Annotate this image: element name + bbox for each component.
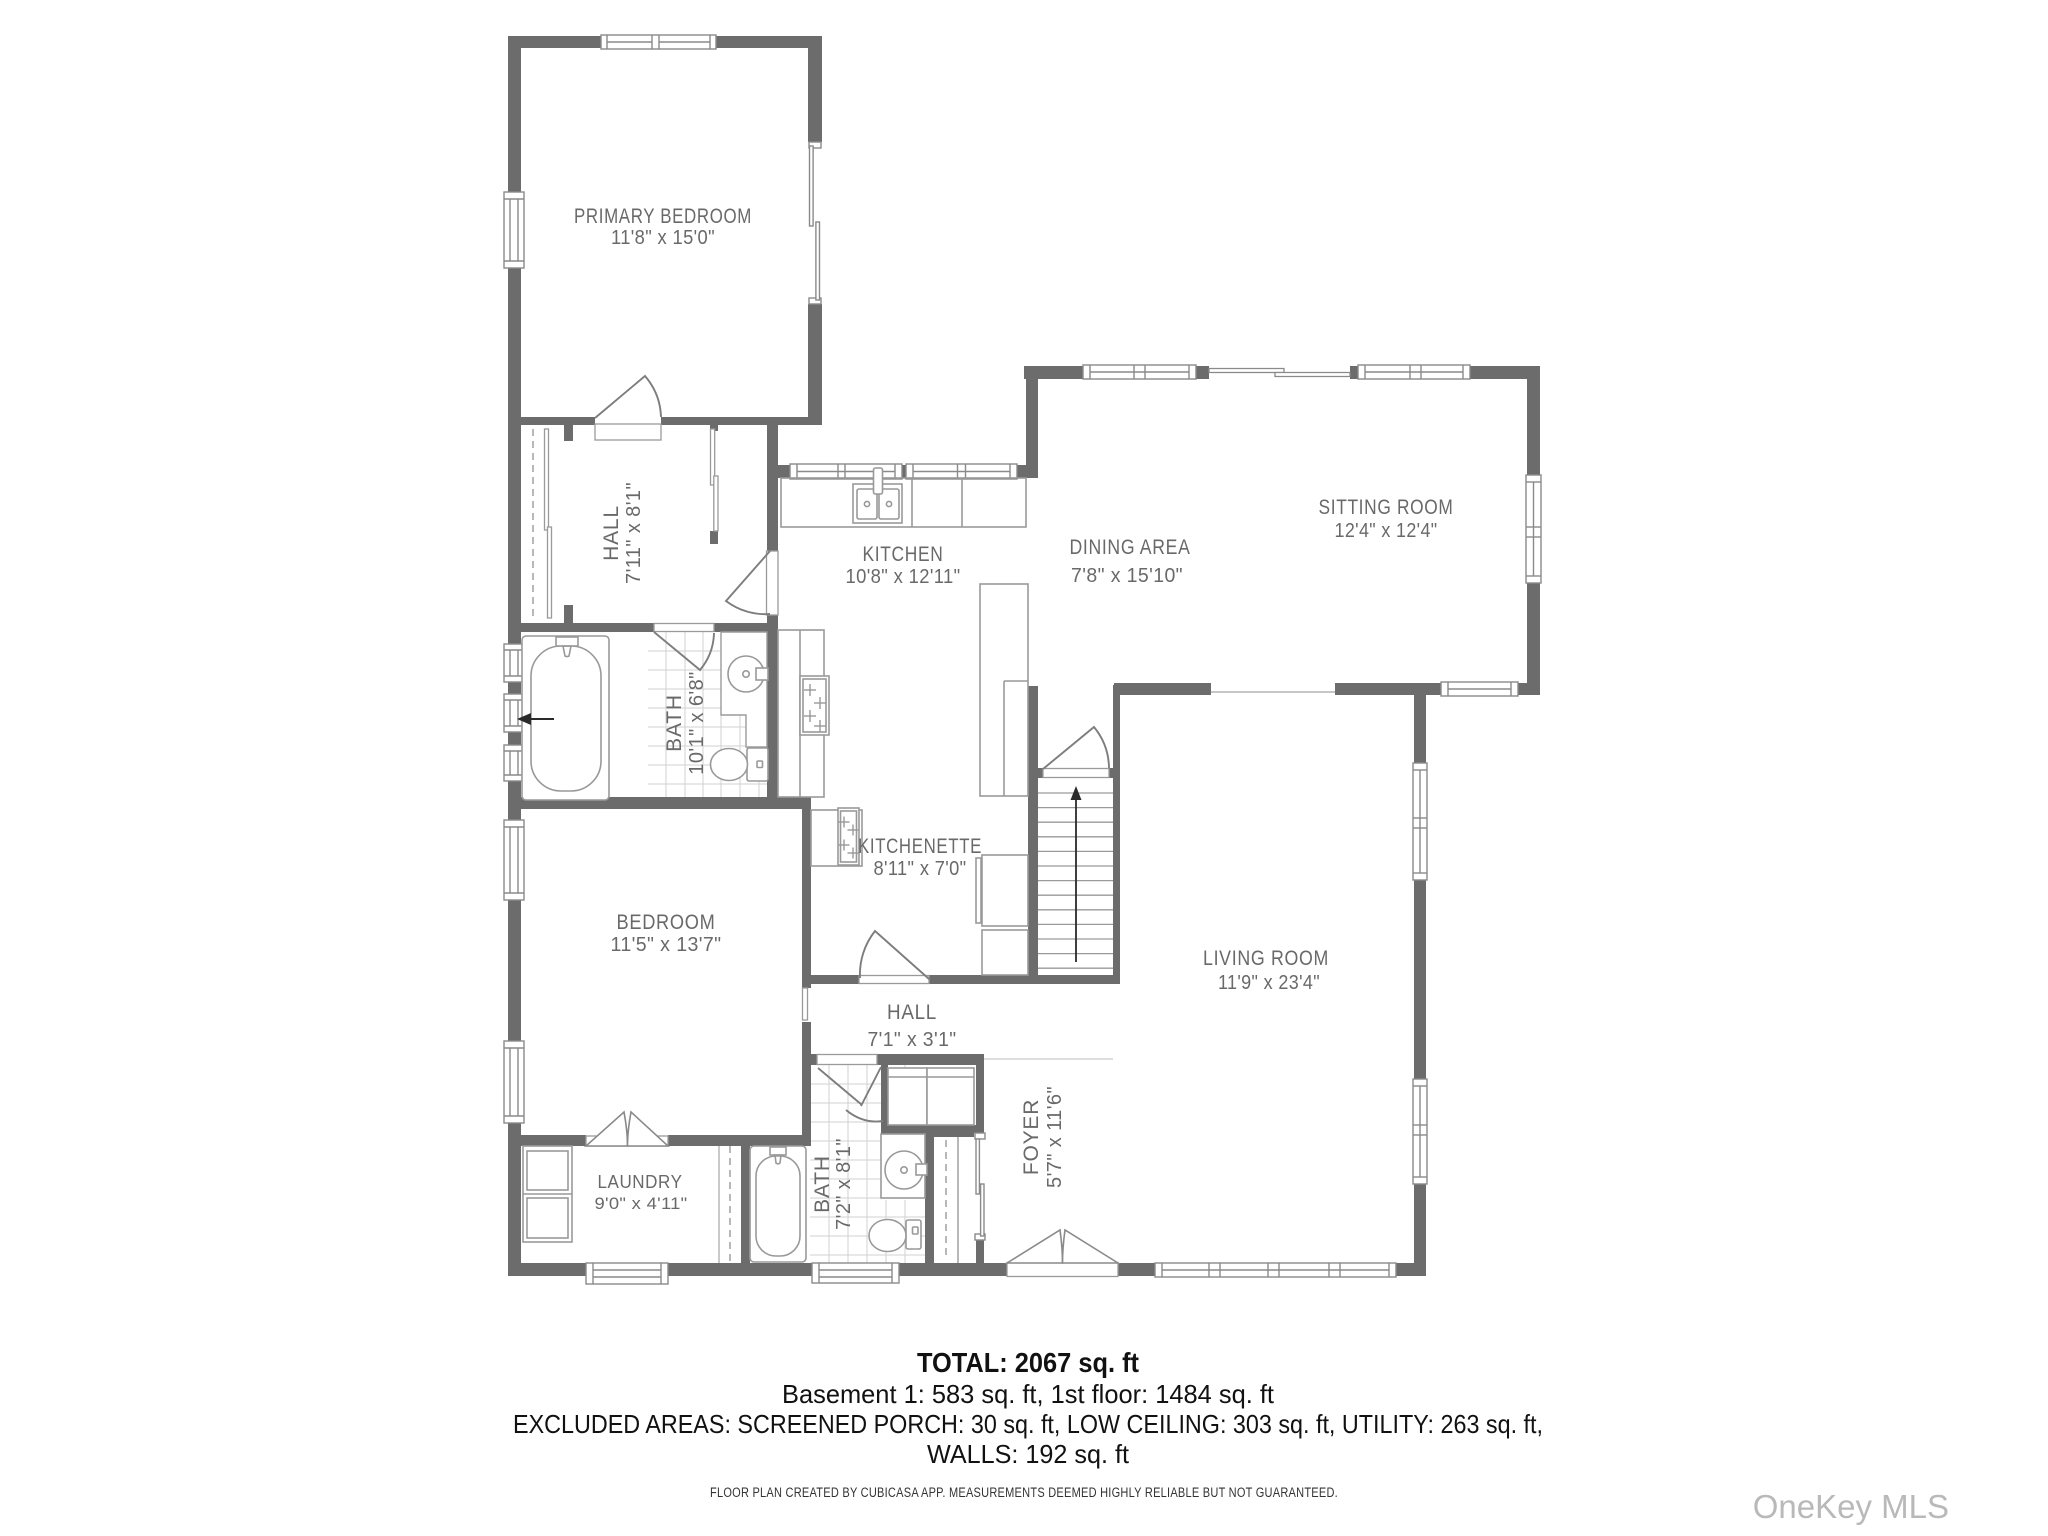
svg-text:SITTING ROOM: SITTING ROOM xyxy=(1319,496,1454,519)
svg-text:8'11" x 7'0": 8'11" x 7'0" xyxy=(874,858,967,880)
svg-text:10'1" x 6'8": 10'1" x 6'8" xyxy=(686,671,708,774)
svg-text:7'2" x 8'1": 7'2" x 8'1" xyxy=(833,1138,855,1230)
svg-text:Basement 1: 583 sq. ft, 1st fl: Basement 1: 583 sq. ft, 1st floor: 1484 … xyxy=(782,1379,1275,1409)
svg-text:OneKey MLS: OneKey MLS xyxy=(1753,1488,1949,1525)
svg-text:5'7" x 11'6": 5'7" x 11'6" xyxy=(1044,1086,1066,1188)
svg-text:BATH: BATH xyxy=(663,694,686,752)
svg-text:BATH: BATH xyxy=(811,1155,834,1213)
svg-text:EXCLUDED AREAS: SCREENED PORCH: EXCLUDED AREAS: SCREENED PORCH: 30 sq. f… xyxy=(513,1409,1543,1439)
svg-text:TOTAL: 2067 sq. ft: TOTAL: 2067 sq. ft xyxy=(917,1347,1139,1378)
svg-text:11'9" x 23'4": 11'9" x 23'4" xyxy=(1218,972,1320,994)
svg-text:KITCHEN: KITCHEN xyxy=(863,543,944,566)
svg-text:9'0" x 4'11": 9'0" x 4'11" xyxy=(595,1194,688,1213)
svg-text:10'8" x 12'11": 10'8" x 12'11" xyxy=(846,566,961,588)
svg-text:FOYER: FOYER xyxy=(1020,1099,1043,1175)
svg-text:FLOOR PLAN CREATED BY CUBICASA: FLOOR PLAN CREATED BY CUBICASA APP. MEAS… xyxy=(710,1485,1338,1500)
svg-text:7'11" x 8'1": 7'11" x 8'1" xyxy=(623,482,645,584)
svg-text:HALL: HALL xyxy=(887,1001,937,1024)
svg-text:DINING AREA: DINING AREA xyxy=(1070,536,1191,559)
svg-text:LIVING ROOM: LIVING ROOM xyxy=(1203,947,1329,970)
svg-text:7'1" x 3'1": 7'1" x 3'1" xyxy=(868,1029,957,1051)
svg-text:12'4" x 12'4": 12'4" x 12'4" xyxy=(1335,520,1438,542)
svg-text:11'8" x 15'0": 11'8" x 15'0" xyxy=(611,227,715,249)
svg-text:HALL: HALL xyxy=(600,505,623,561)
svg-text:LAUNDRY: LAUNDRY xyxy=(598,1172,683,1192)
svg-text:11'5" x 13'7": 11'5" x 13'7" xyxy=(611,934,722,956)
svg-text:WALLS: 192 sq. ft: WALLS: 192 sq. ft xyxy=(927,1439,1130,1469)
svg-text:PRIMARY BEDROOM: PRIMARY BEDROOM xyxy=(574,205,752,228)
svg-text:7'8" x 15'10": 7'8" x 15'10" xyxy=(1071,565,1183,587)
svg-text:BEDROOM: BEDROOM xyxy=(617,911,716,934)
svg-text:KITCHENETTE: KITCHENETTE xyxy=(858,835,982,858)
